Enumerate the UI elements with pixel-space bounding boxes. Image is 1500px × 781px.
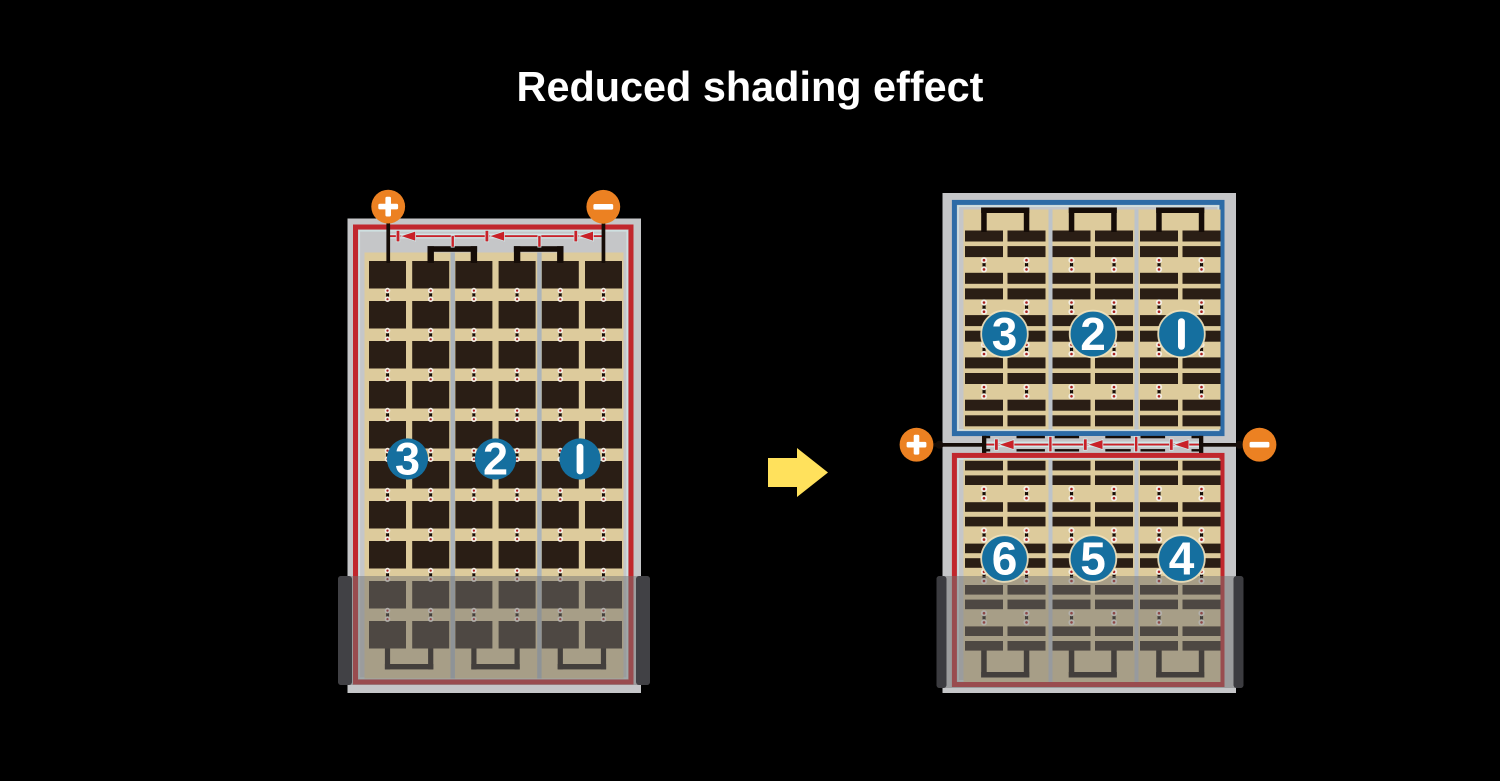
svg-text:2: 2	[483, 434, 508, 485]
svg-text:4: 4	[1169, 533, 1195, 585]
svg-text:2: 2	[1080, 308, 1106, 360]
svg-text:6: 6	[992, 533, 1018, 585]
svg-text:3: 3	[992, 308, 1018, 360]
svg-text:Reduced shading effect: Reduced shading effect	[517, 64, 984, 110]
svg-text:5: 5	[1080, 533, 1106, 585]
svg-text:3: 3	[395, 434, 420, 485]
